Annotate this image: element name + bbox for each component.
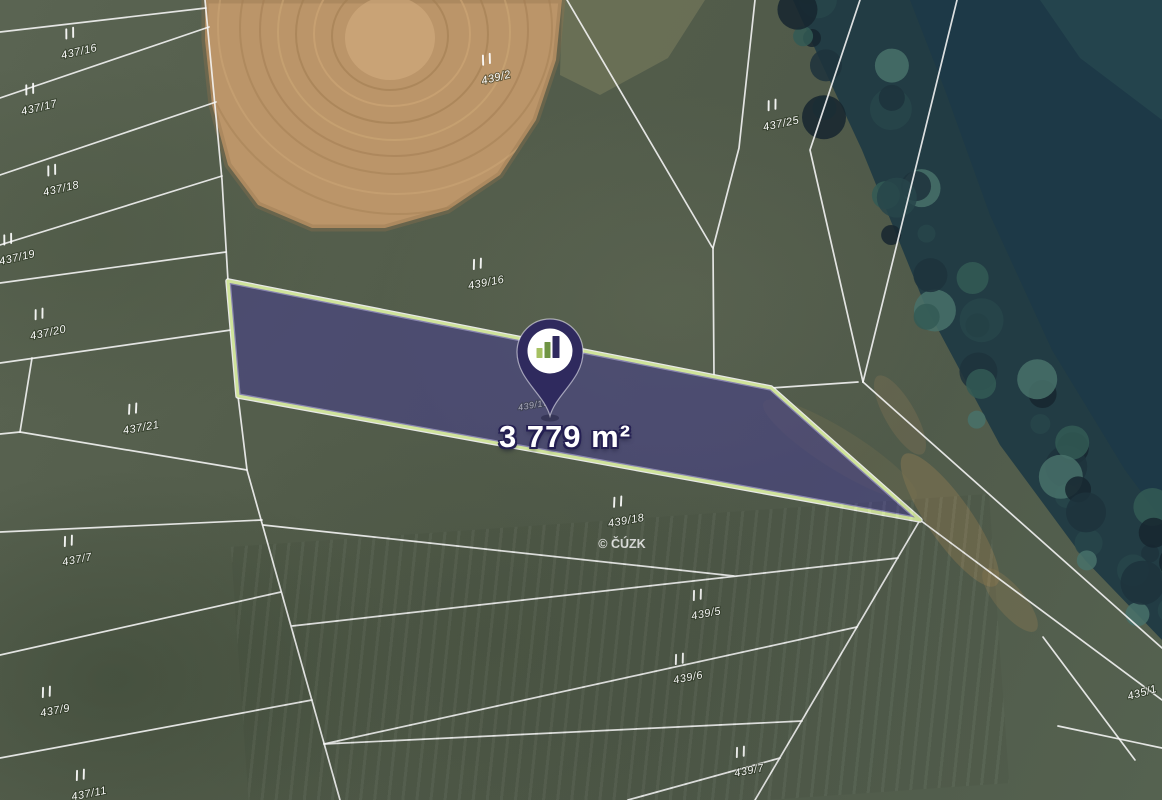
tree-blob	[1030, 414, 1050, 434]
cadastral-boundary-line	[263, 525, 734, 576]
cadastral-boundary-line	[324, 627, 857, 744]
parcel-label-group: 439/5	[687, 587, 723, 623]
cadastral-boundary-line	[292, 558, 898, 626]
tree-blob	[913, 258, 947, 292]
parcel-label: 437/21	[122, 419, 160, 437]
grassland-symbol-icon	[75, 770, 86, 781]
cadastral-boundary-line	[713, 248, 714, 376]
stubble-patch	[560, 0, 705, 95]
grassland-symbol-icon	[41, 687, 52, 698]
parcel-label-group: 439/7	[730, 744, 766, 780]
parcel-label: 439/6	[672, 669, 704, 687]
grassland-symbol-icon	[64, 28, 75, 39]
cadastral-boundary-line	[1043, 637, 1135, 760]
parcel-label: 439/18	[607, 512, 646, 530]
tree-blob	[810, 49, 842, 81]
parcel-label: 437/20	[29, 323, 68, 342]
highlighted-parcel[interactable]	[228, 281, 920, 520]
parcel-label-group: 437/16	[56, 23, 99, 62]
parcel-label-group: 437/21	[119, 400, 160, 437]
parcel-label: 437/25	[762, 114, 801, 133]
parcel-label-group: 437/7	[58, 533, 94, 569]
parcel-label-group: 439/16	[463, 255, 505, 292]
cadastral-boundary-line	[0, 432, 247, 470]
cadastral-boundary-line	[713, 0, 755, 248]
tree-blob	[914, 304, 940, 330]
cadastral-boundary-line	[0, 27, 209, 98]
parcel-label: 439/5	[690, 605, 722, 623]
cadastral-boundary-line	[0, 592, 281, 655]
parcel-label: 437/9	[39, 702, 71, 720]
plowed-field	[198, 0, 598, 228]
tree-blob	[877, 178, 917, 218]
tree-blob	[1055, 426, 1089, 460]
grassland-symbol-icon	[767, 100, 778, 111]
grassland-symbol-icon	[46, 165, 57, 176]
tree-blob	[968, 411, 986, 429]
cadastral-boundary-line	[324, 721, 802, 744]
grassland-symbol-icon	[472, 259, 483, 270]
cadastral-boundary-line	[20, 358, 32, 432]
tree-blob	[802, 95, 846, 139]
tree-blob	[966, 369, 996, 399]
grassland-symbol-icon	[63, 536, 74, 547]
grassland-symbol-icon	[34, 309, 45, 320]
satellite-map[interactable]: 437/16437/17437/18437/19437/20437/21439/…	[0, 0, 1162, 800]
cadastral-boundary-line	[1058, 726, 1162, 748]
tree-blob	[879, 85, 905, 111]
parcel-label-group: 437/20	[25, 305, 68, 343]
parcel-label-group: 437/9	[36, 684, 71, 720]
parcel-label-group: 437/18	[38, 160, 81, 199]
parcel-label: 437/7	[61, 551, 93, 569]
grassland-symbol-icon	[735, 747, 746, 758]
tree-blob	[960, 298, 1004, 342]
grassland-symbol-icon	[24, 84, 35, 95]
grassland-symbol-icon	[674, 654, 685, 665]
terrain-layer: 437/16437/17437/18437/19437/20437/21439/…	[0, 0, 1162, 800]
parcel-label-group: 439/6	[669, 651, 705, 687]
tree-blob	[875, 49, 909, 83]
cadastral-boundary-line	[0, 8, 206, 32]
cadastral-boundary-line	[0, 176, 222, 245]
cadastral-boundary-line	[771, 382, 858, 388]
grassland-symbol-icon	[612, 496, 622, 506]
attribution-text: © ČÚZK	[598, 536, 645, 551]
parcel-label: 437/16	[60, 42, 99, 62]
tree-blob	[1017, 359, 1057, 399]
parcel-label: 437/18	[42, 179, 81, 199]
parcel-label: 437/17	[20, 98, 59, 118]
tree-blob	[957, 262, 989, 294]
cadastral-boundary-line	[755, 520, 920, 800]
grassland-symbol-icon	[692, 590, 703, 601]
parcel-label: 437/19	[0, 248, 36, 268]
tree-blob	[918, 225, 936, 243]
parcel-label: 437/11	[70, 785, 107, 800]
parcel-label-group: 437/25	[758, 96, 801, 134]
tree-blob	[1066, 492, 1106, 532]
parcel-label-group: 437/11	[67, 766, 108, 800]
grassland-symbol-icon	[127, 403, 137, 413]
parcel-label: 439/16	[467, 274, 506, 293]
tree-blob	[1125, 602, 1149, 626]
parcel-label-group: 439/18	[604, 493, 646, 530]
parcel-label: 435/1	[1126, 683, 1158, 703]
tree-blob	[1077, 550, 1097, 570]
cadastral-boundary-line	[0, 520, 262, 532]
highlight-fill	[228, 281, 920, 520]
parcel-label: 439/7	[733, 762, 765, 780]
parcel-label-group: 435/1	[1126, 683, 1158, 703]
